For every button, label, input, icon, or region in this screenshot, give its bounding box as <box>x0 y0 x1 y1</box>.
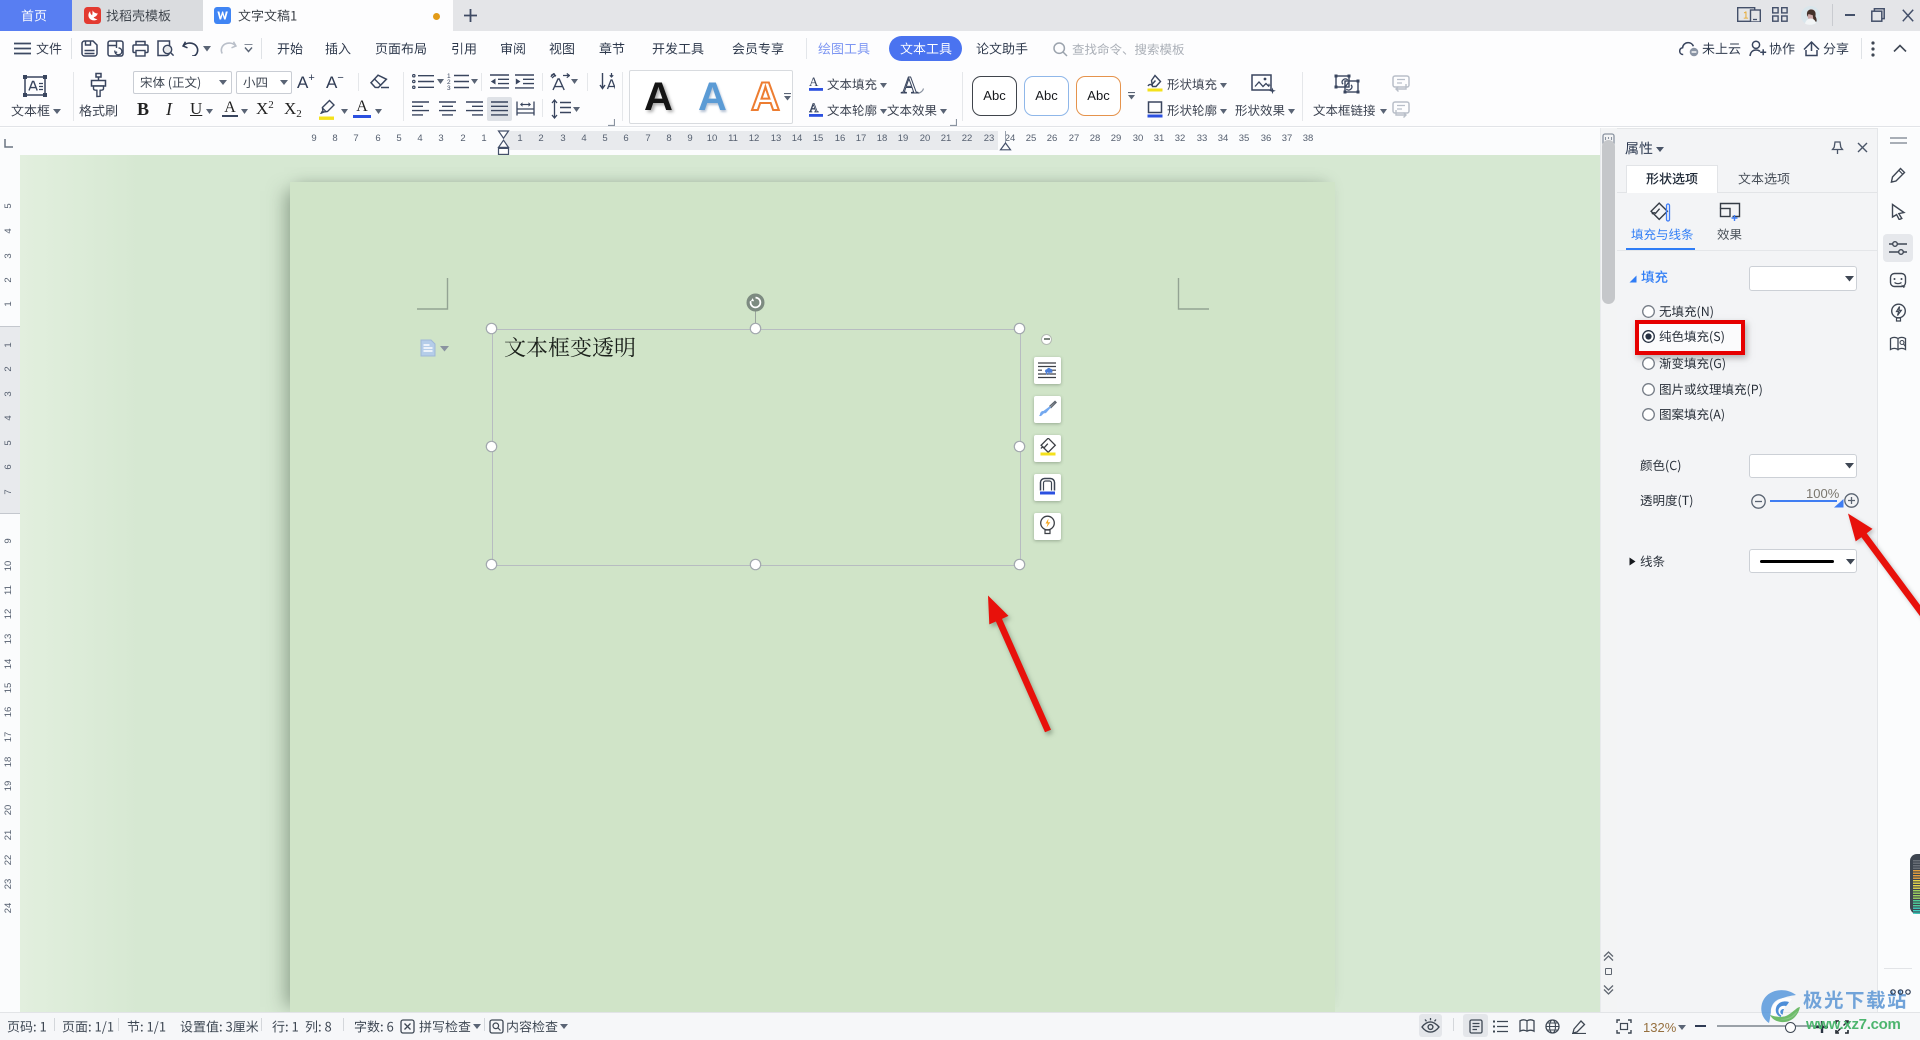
svg-text:A: A <box>901 73 919 98</box>
svg-text:1: 1 <box>1743 11 1749 22</box>
svg-text:A: A <box>809 101 819 115</box>
svg-text:A: A <box>809 75 819 89</box>
svg-text:3: 3 <box>447 85 451 90</box>
